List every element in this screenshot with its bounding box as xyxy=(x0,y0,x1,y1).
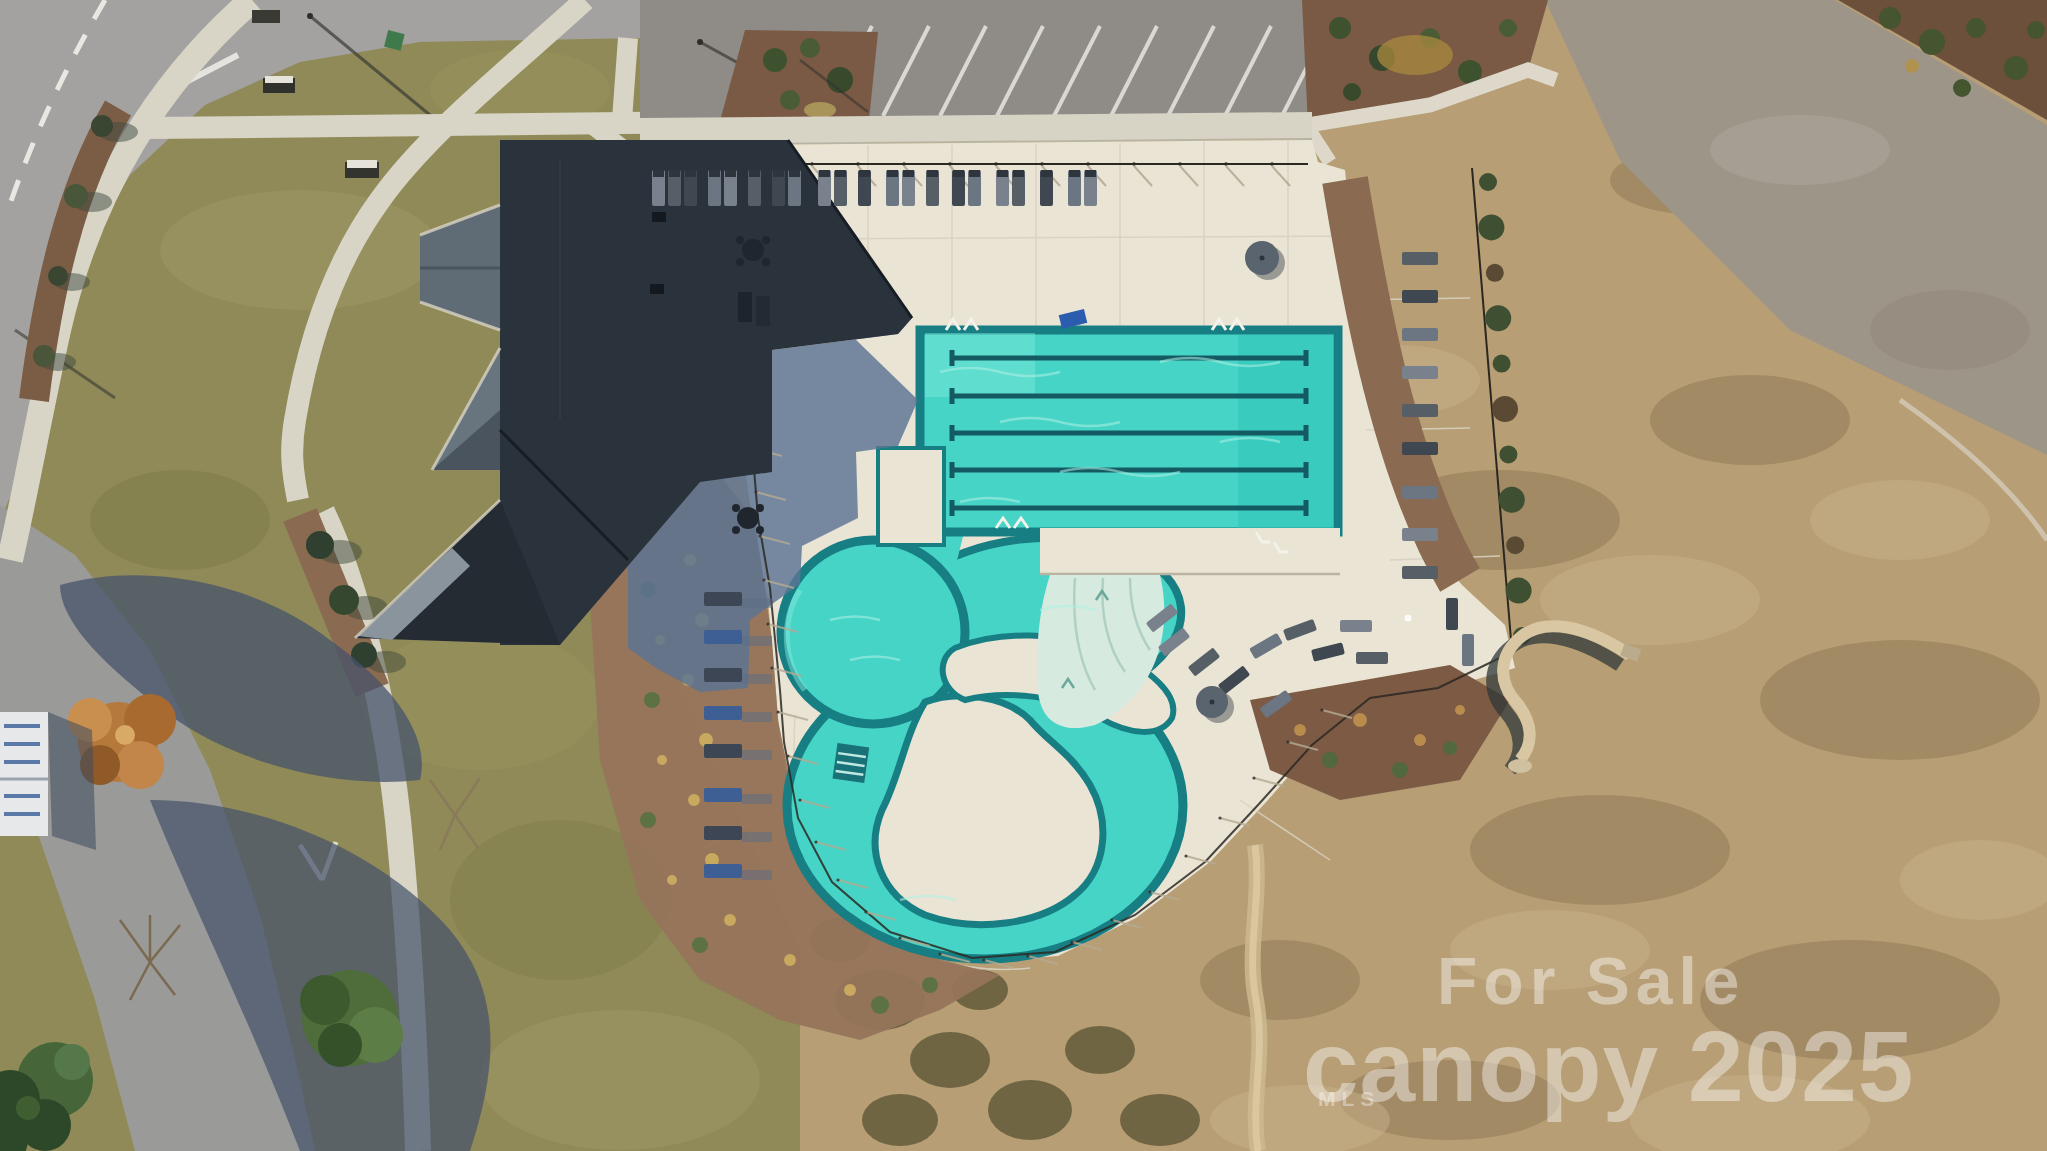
pool-steps xyxy=(833,743,870,783)
aerial-photo: For Sale canopy 2025 MLS xyxy=(0,0,2047,1151)
aerial-scene xyxy=(0,0,2047,1151)
lap-pool xyxy=(920,330,1338,532)
parking-island xyxy=(718,30,878,130)
deck-peninsula xyxy=(1040,528,1340,575)
deck-jut xyxy=(878,448,944,545)
white-building xyxy=(0,712,96,850)
